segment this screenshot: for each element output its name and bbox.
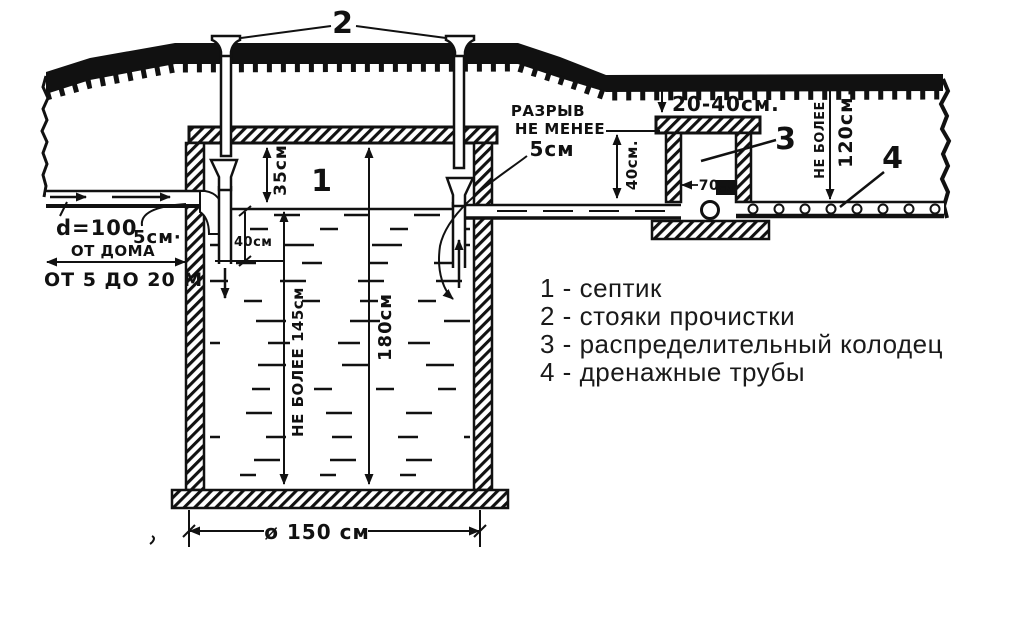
dim-40-inlet-label: 40см xyxy=(234,235,272,250)
well-outlet-hole xyxy=(702,202,719,219)
razryv-line2: НЕ МЕНЕЕ xyxy=(515,120,605,138)
legend-item-risers: 2 - стояки прочистки xyxy=(540,301,795,331)
dim-180-label: 180см xyxy=(375,293,396,361)
diagram-canvas: 70 см 35см 40см НЕ БОЛЕЕ 145см 180см ø 1… xyxy=(0,0,1013,618)
well-wall-right xyxy=(736,133,751,202)
dim-20-40-label: 20-40см. xyxy=(672,92,780,116)
drainage-pipe xyxy=(736,202,944,216)
dim-145-label: НЕ БОЛЕЕ 145см xyxy=(289,287,307,437)
standpipe-right-stem xyxy=(454,48,464,168)
well-lid xyxy=(656,117,760,133)
callout-risers-number: 2 xyxy=(332,6,354,41)
well-wall-left xyxy=(666,133,681,202)
tank-lid xyxy=(189,127,497,143)
dim-120-label: 120см. xyxy=(835,88,857,168)
pipe-diameter-label: d=100 xyxy=(56,216,137,240)
from-house-label: ОТ ДОМА xyxy=(71,242,155,260)
razryv-line1: РАЗРЫВ xyxy=(511,102,585,120)
callout-drain-number: 4 xyxy=(882,141,904,176)
razryv-line3: 5см xyxy=(529,137,574,161)
septic-diagram: 70 см 35см 40см НЕ БОЛЕЕ 145см 180см ø 1… xyxy=(0,0,1013,618)
well-bottom-slab xyxy=(652,221,769,239)
from-house-range-label: ОТ 5 ДО 20 М xyxy=(44,269,203,291)
callout-well-number: 3 xyxy=(775,122,797,157)
outlet-pipe xyxy=(466,205,681,218)
paper-background xyxy=(0,0,1013,618)
dim-40-well-label: 40см. xyxy=(623,140,641,190)
inlet-tee-stem xyxy=(219,186,231,264)
legend-item-well: 3 - распределительный колодец xyxy=(540,329,943,359)
legend-item-drain: 4 - дренажные трубы xyxy=(540,357,805,387)
dim-35: 35см xyxy=(267,144,291,202)
dim-35-label: 35см xyxy=(271,144,291,196)
dim-70-unit: см xyxy=(718,182,734,195)
dim-150-label: ø 150 см xyxy=(264,520,370,544)
standpipe-left-stem xyxy=(221,48,231,156)
legend-item-septic: 1 - септик xyxy=(540,273,662,303)
tank-bottom-slab xyxy=(172,490,508,508)
dim-120-prefix: НЕ БОЛЕЕ xyxy=(813,101,828,179)
callout-septic-number: 1 xyxy=(311,164,333,199)
